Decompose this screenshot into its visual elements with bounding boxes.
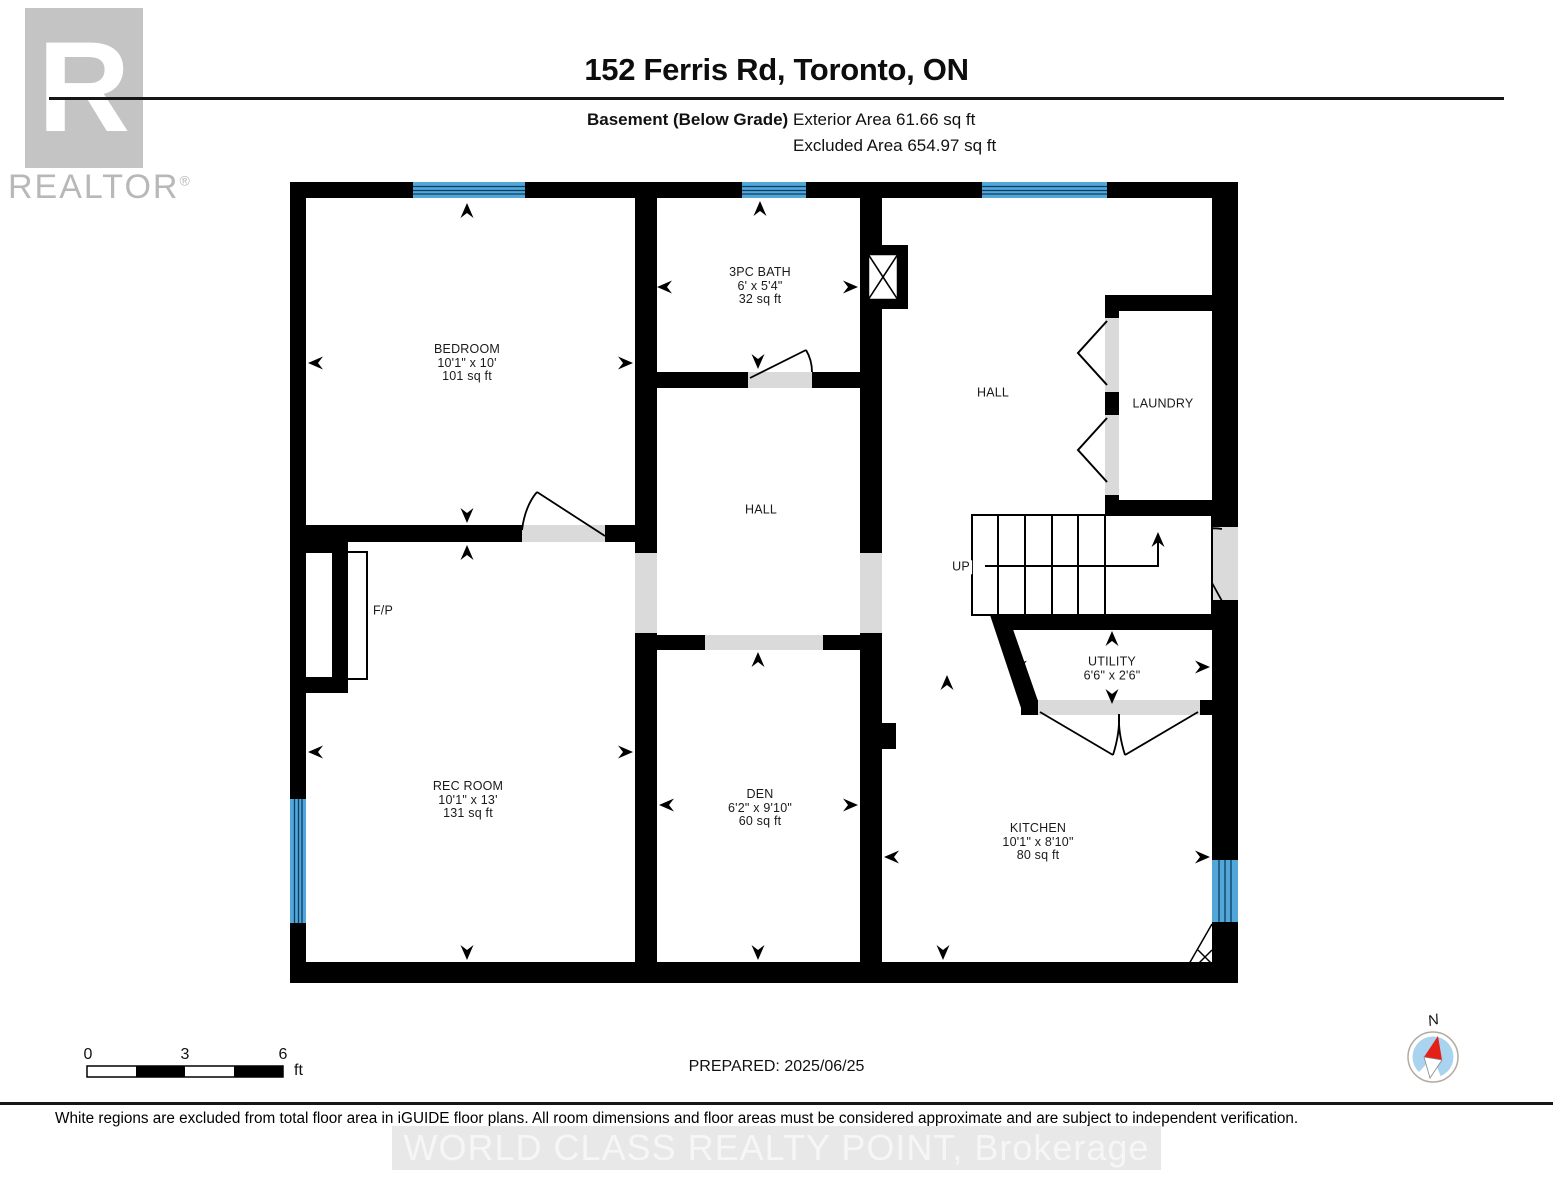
room-name: BEDROOM	[434, 343, 500, 357]
room-dims: 10'1" x 8'10"	[1002, 835, 1073, 849]
floor-plan-page: R REALTOR® 152 Ferris Rd, Toronto, ON Ba…	[0, 0, 1553, 1200]
exterior-area: Exterior Area 61.66 sq ft	[793, 110, 975, 130]
room-label-bath: 3PC BATH 6' x 5'4" 32 sq ft	[729, 266, 791, 307]
realtor-logo: R	[25, 8, 143, 168]
floor-label: Basement (Below Grade)	[587, 110, 788, 130]
room-label-rec-room: REC ROOM 10'1" x 13' 131 sq ft	[433, 780, 503, 821]
room-label-den: DEN 6'2" x 9'10" 60 sq ft	[728, 788, 792, 829]
room-label-utility: UTILITY 6'6" x 2'6"	[1084, 656, 1141, 683]
room-name: DEN	[728, 788, 792, 802]
room-area: 131 sq ft	[433, 807, 503, 821]
room-label-kitchen: KITCHEN 10'1" x 8'10" 80 sq ft	[1002, 822, 1073, 863]
excluded-area: Excluded Area 654.97 sq ft	[793, 136, 996, 156]
room-name: REC ROOM	[433, 780, 503, 794]
logo-r-letter: R	[38, 24, 130, 152]
fireplace-label: F/P	[373, 604, 393, 618]
room-dims: 10'1" x 10'	[434, 356, 500, 370]
room-area: 101 sq ft	[434, 370, 500, 384]
room-dims: 6' x 5'4"	[729, 279, 791, 293]
room-area: 80 sq ft	[1002, 849, 1073, 863]
room-dims: 10'1" x 13'	[433, 793, 503, 807]
title-divider	[49, 97, 1504, 100]
brand-text: REALTOR	[8, 168, 179, 206]
room-dims: 6'6" x 2'6"	[1084, 669, 1141, 683]
room-area: 32 sq ft	[729, 293, 791, 307]
footer-divider	[0, 1102, 1553, 1105]
room-name: KITCHEN	[1002, 822, 1073, 836]
registered-mark: ®	[179, 173, 191, 189]
page-title: 152 Ferris Rd, Toronto, ON	[0, 52, 1553, 88]
duct-chase-box	[868, 254, 898, 300]
room-name: 3PC BATH	[729, 266, 791, 280]
realtor-wordmark: REALTOR®	[8, 168, 192, 207]
stairs	[972, 515, 1212, 615]
room-label-hall-right: HALL	[977, 386, 1009, 400]
bifold-doors	[1078, 321, 1107, 482]
corner-detail	[1189, 924, 1212, 964]
brokerage-watermark: WORLD CLASS REALTY POINT, Brokerage	[392, 1126, 1162, 1170]
room-label-bedroom: BEDROOM 10'1" x 10' 101 sq ft	[434, 343, 500, 384]
stairs-up-label: UP	[950, 560, 972, 574]
room-name: UTILITY	[1084, 656, 1141, 670]
room-area: 60 sq ft	[728, 815, 792, 829]
floor-plan-drawing	[0, 0, 1553, 1200]
prepared-date: PREPARED: 2025/06/25	[0, 1058, 1553, 1076]
room-label-hall-center: HALL	[745, 503, 777, 517]
fireplace-box	[347, 552, 367, 679]
room-label-laundry: LAUNDRY	[1133, 397, 1194, 411]
room-dims: 6'2" x 9'10"	[728, 801, 792, 815]
